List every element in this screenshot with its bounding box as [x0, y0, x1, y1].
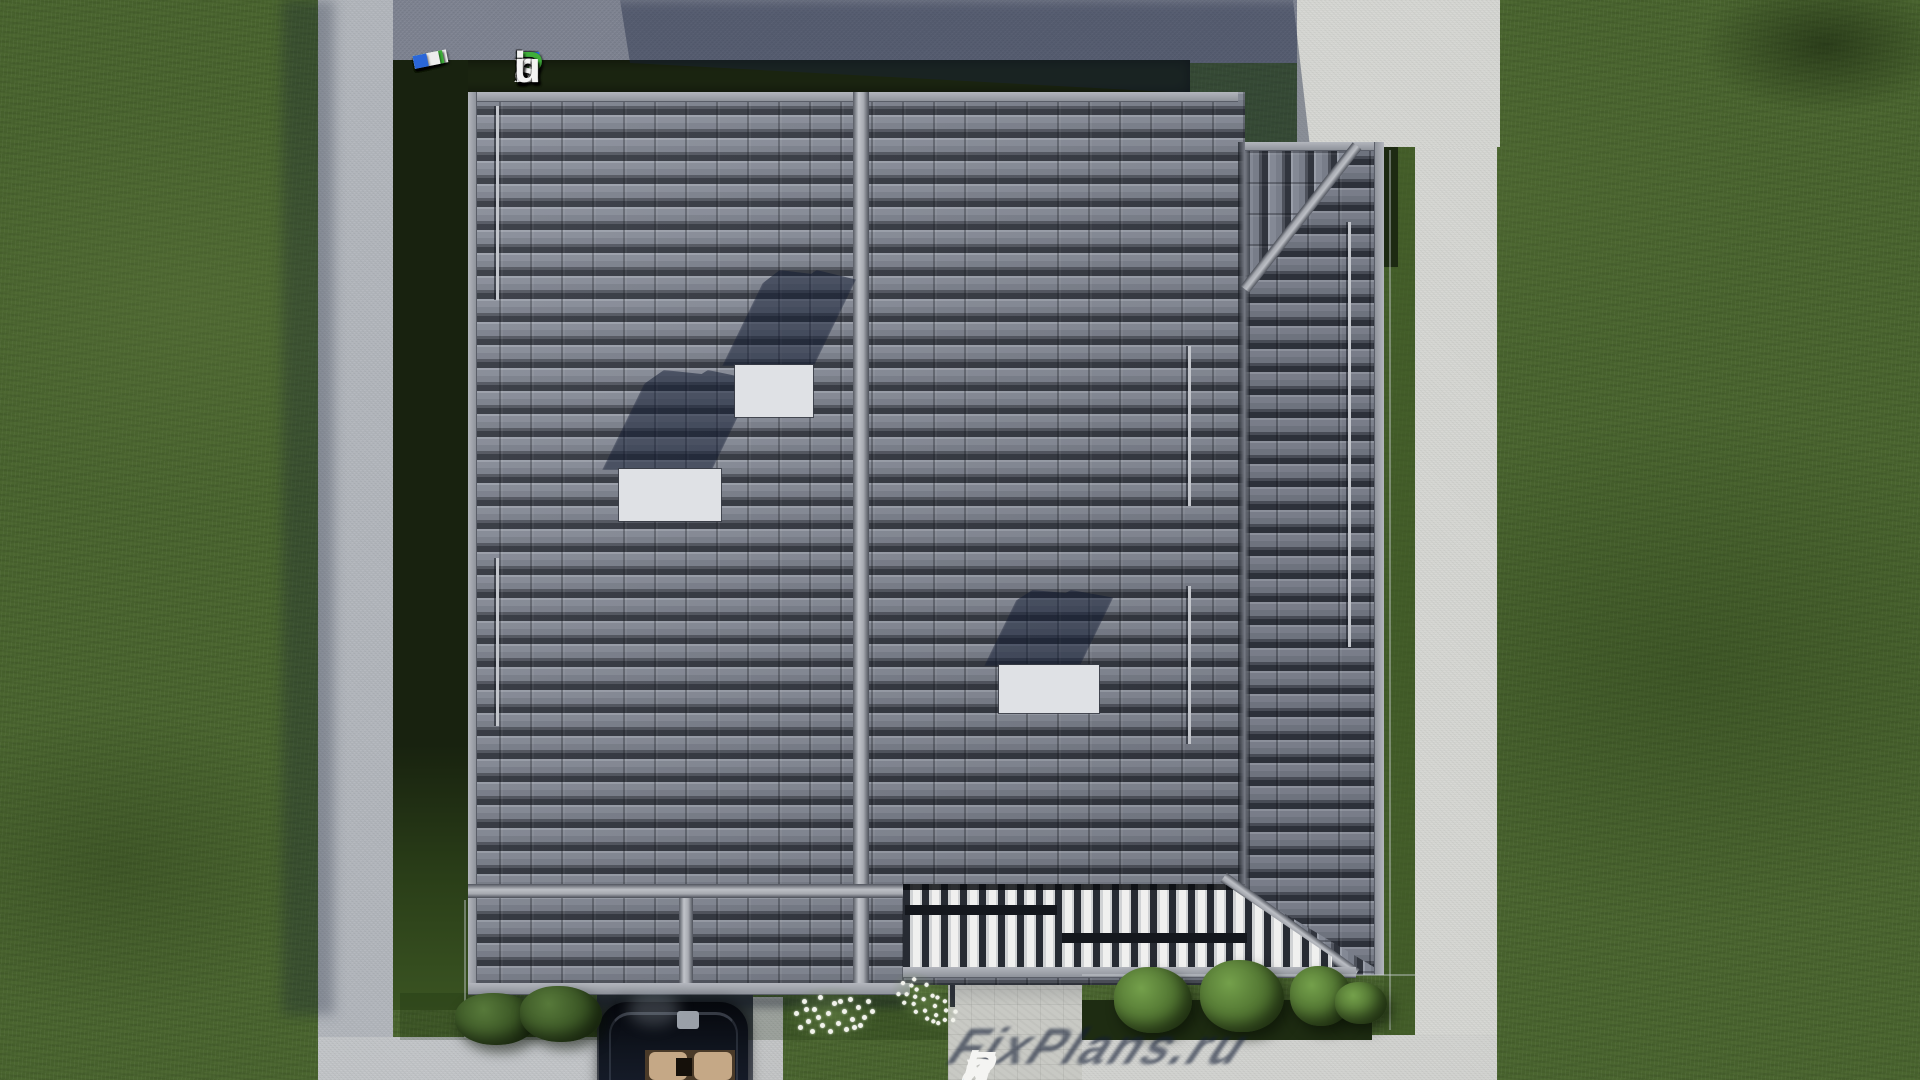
pergola-beam: [1062, 933, 1247, 943]
eave-west: [468, 92, 477, 985]
logo-letter: u: [514, 46, 542, 90]
flower: [862, 1015, 867, 1020]
fixplans-watermark-bottom: FixPlans.ru FixPlans.ru: [958, 1030, 1438, 1080]
flower: [828, 1029, 833, 1034]
flower: [802, 999, 807, 1004]
hedge-left: [393, 60, 468, 1010]
shadow-on-left-path: [282, 0, 334, 1015]
pergola-beam: [905, 905, 1057, 915]
gutter-pipe: [494, 558, 499, 726]
flower: [820, 1023, 825, 1028]
flower: [844, 1027, 849, 1032]
walkway-right: [1415, 147, 1497, 1035]
gutter-pipe: [1346, 222, 1351, 647]
roof-valley: [1238, 142, 1250, 975]
flower: [848, 997, 853, 1002]
flower: [858, 1023, 863, 1028]
flower: [866, 999, 871, 1004]
exhaust-smoke: [628, 992, 680, 1026]
flower: [812, 1007, 817, 1012]
flower-cluster: [792, 993, 877, 1038]
flower: [832, 1001, 837, 1006]
concrete-pad-top-right: [1297, 0, 1500, 147]
flower: [804, 1007, 809, 1012]
vent-face: [999, 665, 1099, 713]
roof-vent: [734, 364, 814, 418]
aerial-house-render: FixPlans.ru FixPlans.ru FixPlans.ru: [0, 0, 1920, 1080]
car-seat: [694, 1052, 732, 1080]
bush: [520, 986, 602, 1042]
flower: [816, 1015, 821, 1020]
eave-wing-east: [1374, 142, 1384, 975]
vent-face: [735, 365, 813, 417]
roof-vent: [998, 664, 1100, 714]
flower: [826, 1011, 831, 1016]
flower: [810, 1029, 815, 1034]
flower: [852, 1025, 857, 1030]
flower: [794, 1011, 799, 1016]
roof-vent: [618, 468, 722, 522]
hedge-top: [393, 60, 1190, 93]
eave-wing-north: [1245, 142, 1384, 151]
gutter-pipe: [1186, 346, 1191, 506]
flower: [798, 1025, 803, 1030]
fence-line-right: [1389, 150, 1391, 1030]
flower: [856, 1005, 861, 1010]
flower: [850, 1017, 855, 1022]
path-bottom-left: [318, 1037, 600, 1080]
car-console: [676, 1058, 692, 1076]
flower: [818, 995, 823, 1000]
flower: [870, 1009, 875, 1014]
tape-segment: [413, 53, 429, 69]
flower: [838, 999, 843, 1004]
flower: [842, 1009, 847, 1014]
car-roof-box: [677, 1011, 699, 1029]
bush: [1335, 982, 1387, 1024]
ridge-beam-center: [853, 92, 869, 985]
gutter-pipe: [494, 106, 499, 300]
gutter-pipe: [1186, 586, 1191, 744]
vent-face: [619, 469, 721, 521]
flower: [806, 1019, 811, 1024]
flower: [836, 1021, 841, 1026]
ridge-beam-porch: [679, 898, 693, 985]
